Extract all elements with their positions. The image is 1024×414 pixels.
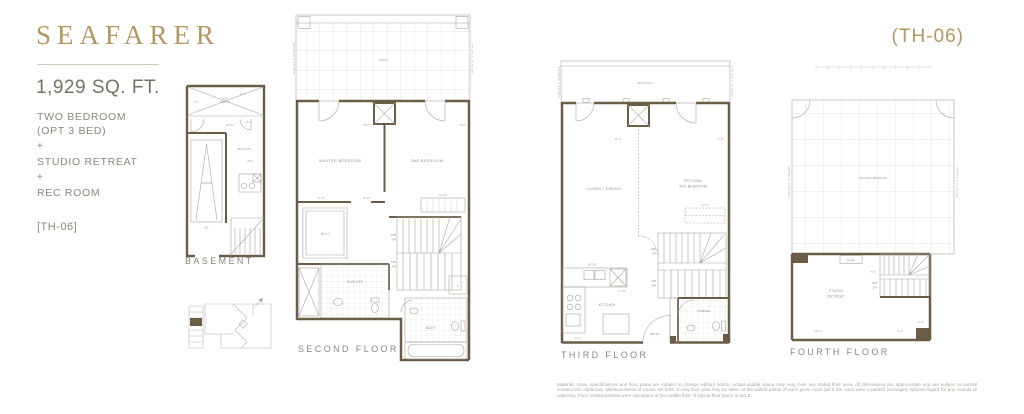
linen-label: L (457, 284, 459, 288)
second-floor-walls (296, 101, 470, 360)
dimension-label: 8'-2" (575, 336, 581, 340)
third-floor-walls (561, 103, 730, 343)
basement-walls (187, 86, 264, 256)
studio-retreat-label: RETREAT (827, 295, 844, 299)
dimension-label: 12'-2" (701, 203, 709, 207)
stairs-label: 14R (391, 233, 396, 237)
north-arrow-icon (255, 298, 263, 306)
stairs-down-label: DN (205, 227, 209, 230)
dimension-label: 18'-10" (587, 263, 597, 267)
basement-labels: LOW CEILING 17'-0" 8'-0" ENTRY 16'-0" RE… (194, 93, 253, 230)
third-floor-caption: THIRD FLOOR (561, 350, 648, 360)
feature-item: TWO BEDROOM (37, 111, 138, 123)
wic-label: W.I.C. (321, 232, 332, 236)
dimension-label: 9'-2" (460, 123, 466, 127)
stairs-label: UP (392, 238, 396, 242)
privacy-screen-label: PRIVACY SCREEN (731, 66, 734, 97)
dimension-label: 7'-10" (618, 289, 626, 293)
entry-label: ENTRY (650, 332, 660, 336)
fourth-floor-plan: PRIVATE TERRACE PRIVACY SCREEN PRIVACY S… (788, 62, 958, 347)
optional-bedroom-label: OPTIONAL (683, 179, 702, 183)
privacy-screen-label: PRIVACY SCREEN (788, 166, 791, 197)
plus-separator: + (37, 172, 138, 183)
optional-bedroom-label: 3RD BEDROOM (679, 185, 707, 189)
stairs-label: DN (392, 265, 396, 269)
disclaimer-text: Material, sizes, specifications and floo… (557, 382, 977, 399)
fourth-floor-studio (792, 254, 930, 340)
dimension-label: 8'-0" (194, 101, 199, 104)
dimension-label: 8'-9" (248, 160, 253, 163)
stairs-label: DN (652, 284, 656, 288)
page-title: SEAFARER (36, 20, 220, 51)
stairs-label: UP (652, 252, 656, 256)
kitchen-label: KITCHEN (599, 303, 616, 307)
second-bedroom-label: 2ND BEDROOM (411, 159, 444, 163)
master-bedroom-label: MASTER BEDROOM (319, 159, 361, 163)
dimension-label: 16'-0" (246, 121, 252, 124)
unit-code-top-right: (TH-06) (892, 26, 964, 48)
dimension-label: 7'-8" (718, 137, 724, 141)
dimension-label: 7'-5" (870, 270, 876, 274)
bath-label: BATH (426, 326, 436, 330)
stairs-label: 14R (391, 260, 396, 264)
privacy-screen-label: PRIVACY SCREEN (471, 42, 474, 73)
dimension-label: 8'-11" (363, 196, 371, 200)
dimension-label: 17'-0" (240, 93, 246, 96)
rec-room-label: REC ROOM (237, 148, 251, 151)
living-dining-label: LIVING / DINING (587, 187, 622, 191)
second-floor-patio: PATIO PRIVACY SCREEN PRIVACY SCREEN (293, 15, 473, 101)
privacy-screen-label: PRIVACY SCREEN (558, 66, 561, 97)
plus-separator: + (37, 141, 138, 152)
low-ceiling-label: CEILING (220, 101, 230, 104)
unit-code: [TH-06] (37, 221, 77, 233)
stairs-label: 14R (651, 279, 656, 283)
second-floor-caption: SECOND FLOOR (298, 344, 399, 354)
dimension-label: 11'-6" (614, 137, 622, 141)
basement-plan: LOW CEILING 17'-0" 8'-0" ENTRY 16'-0" RE… (183, 82, 268, 260)
studio-retreat-label: STUDIO (829, 289, 843, 293)
dimension-label: 9'-4" (918, 320, 924, 324)
fourth-floor-caption: FOURTH FLOOR (790, 347, 890, 357)
storage-label: STOR. (847, 259, 856, 263)
title-divider (37, 64, 159, 65)
second-floor-plan: PATIO PRIVACY SCREEN PRIVACY SCREEN (293, 12, 473, 364)
balcony-label: BALCONY (638, 81, 653, 85)
dimension-label: 5'-4" (897, 329, 903, 333)
fourth-floor-labels: STOR. 7'-5" 15R DN STUDIO RETREAT 12'-1"… (814, 259, 924, 334)
dimension-label: 12'-2" (439, 193, 447, 197)
key-plan (183, 290, 283, 362)
dimension-label: 12'-1" (814, 329, 822, 333)
stairs-label: 15R (872, 281, 877, 285)
third-floor-balcony: BALCONY PRIVACY SCREEN PRIVACY SCREEN (558, 61, 733, 103)
area-label: 1,929 SQ. FT. (36, 77, 160, 99)
third-floor-labels: 11'-6" 7'-8" LIVING / DINING OPTIONAL 3R… (575, 137, 724, 340)
dimension-label: 14'-8" (317, 196, 325, 200)
privacy-screen-label: PRIVACY SCREEN (956, 166, 959, 197)
fourth-floor-terrace: PRIVATE TERRACE PRIVACY SCREEN PRIVACY S… (788, 65, 958, 254)
third-floor-plan: BALCONY PRIVACY SCREEN PRIVACY SCREEN (558, 58, 733, 353)
keyplan-unit-highlight (190, 318, 202, 326)
basement-caption: BASEMENT (185, 256, 254, 266)
ensuite-label: ENSUITE (347, 280, 364, 284)
floorplan-sheet: SEAFARER 1,929 SQ. FT. TWO BEDROOM (OPT … (0, 0, 1024, 414)
dimension-label: 18'-7" (363, 123, 371, 127)
patio-label: PATIO (379, 58, 388, 62)
feature-item: REC ROOM (37, 187, 138, 199)
stairs-label: DN (873, 286, 877, 290)
private-terrace-label: PRIVATE TERRACE (859, 176, 887, 180)
powder-label: POWDER (697, 309, 710, 313)
feature-item: STUDIO RETREAT (37, 156, 138, 168)
garage-label: GARAGE (201, 182, 212, 185)
feature-list: TWO BEDROOM (OPT 3 BED) + STUDIO RETREAT… (37, 111, 138, 201)
privacy-screen-label: PRIVACY SCREEN (293, 42, 296, 73)
feature-item: (OPT 3 BED) (37, 125, 138, 137)
entry-label: ENTRY (226, 124, 235, 127)
stairs-label: 15R (651, 247, 656, 251)
